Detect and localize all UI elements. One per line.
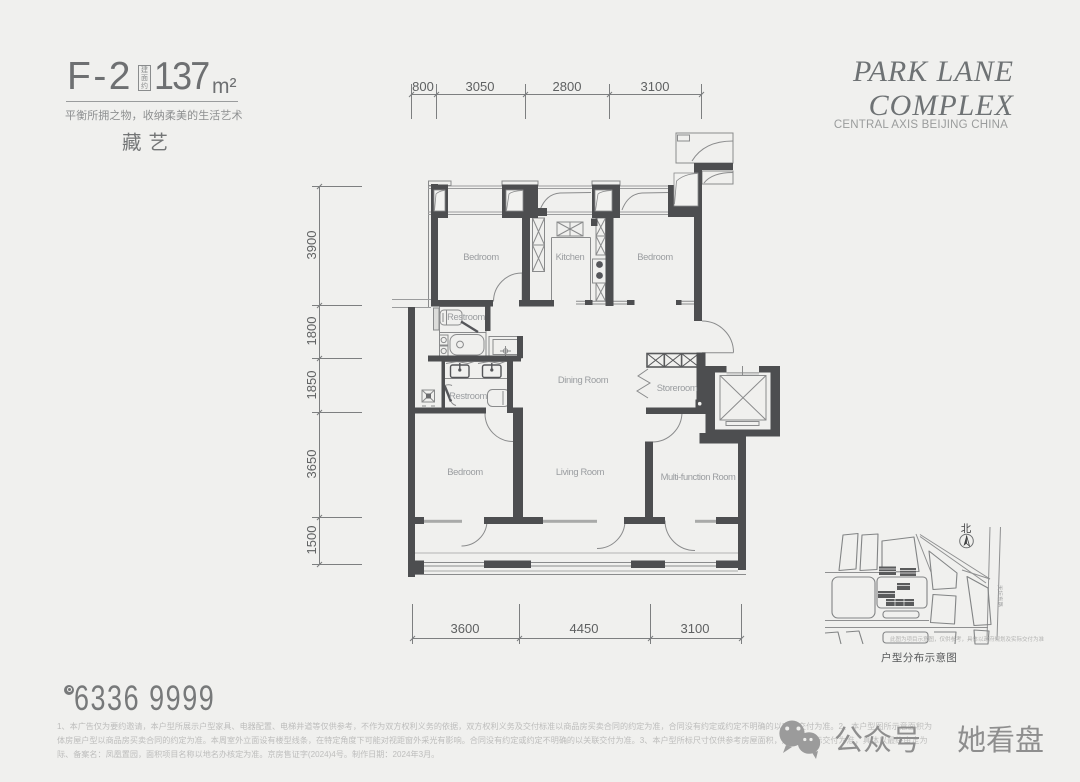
svg-text:Restroom: Restroom <box>449 390 487 401</box>
svg-text:2800: 2800 <box>553 79 582 94</box>
svg-text:3600: 3600 <box>451 621 480 636</box>
svg-text:3050: 3050 <box>466 79 495 94</box>
svg-text:1500: 1500 <box>304 526 319 555</box>
svg-text:3100: 3100 <box>681 621 710 636</box>
svg-text:天坛东路: 天坛东路 <box>996 585 1004 608</box>
svg-text:3900: 3900 <box>304 231 319 260</box>
svg-text:1850: 1850 <box>304 371 319 400</box>
svg-text:Multi-function Room: Multi-function Room <box>661 471 736 482</box>
svg-text:Kitchen: Kitchen <box>556 251 585 262</box>
svg-text:Dining Room: Dining Room <box>558 374 609 385</box>
svg-text:Bedroom: Bedroom <box>447 466 483 477</box>
svg-text:3100: 3100 <box>641 79 670 94</box>
svg-text:Bedroom: Bedroom <box>463 251 499 262</box>
svg-text:北: 北 <box>961 523 972 535</box>
svg-text:Bedroom: Bedroom <box>637 251 673 262</box>
svg-text:4450: 4450 <box>570 621 599 636</box>
svg-text:3650: 3650 <box>304 450 319 479</box>
svg-text:Storeroom: Storeroom <box>657 382 698 393</box>
svg-text:1800: 1800 <box>304 317 319 346</box>
svg-text:800: 800 <box>412 79 434 94</box>
svg-text:Living Room: Living Room <box>556 466 605 477</box>
svg-text:Restroom: Restroom <box>447 311 485 322</box>
svg-text:此图为项目示意图，仅供参考，具体以政府规划及实际交付为准: 此图为项目示意图，仅供参考，具体以政府规划及实际交付为准 <box>890 635 1045 643</box>
